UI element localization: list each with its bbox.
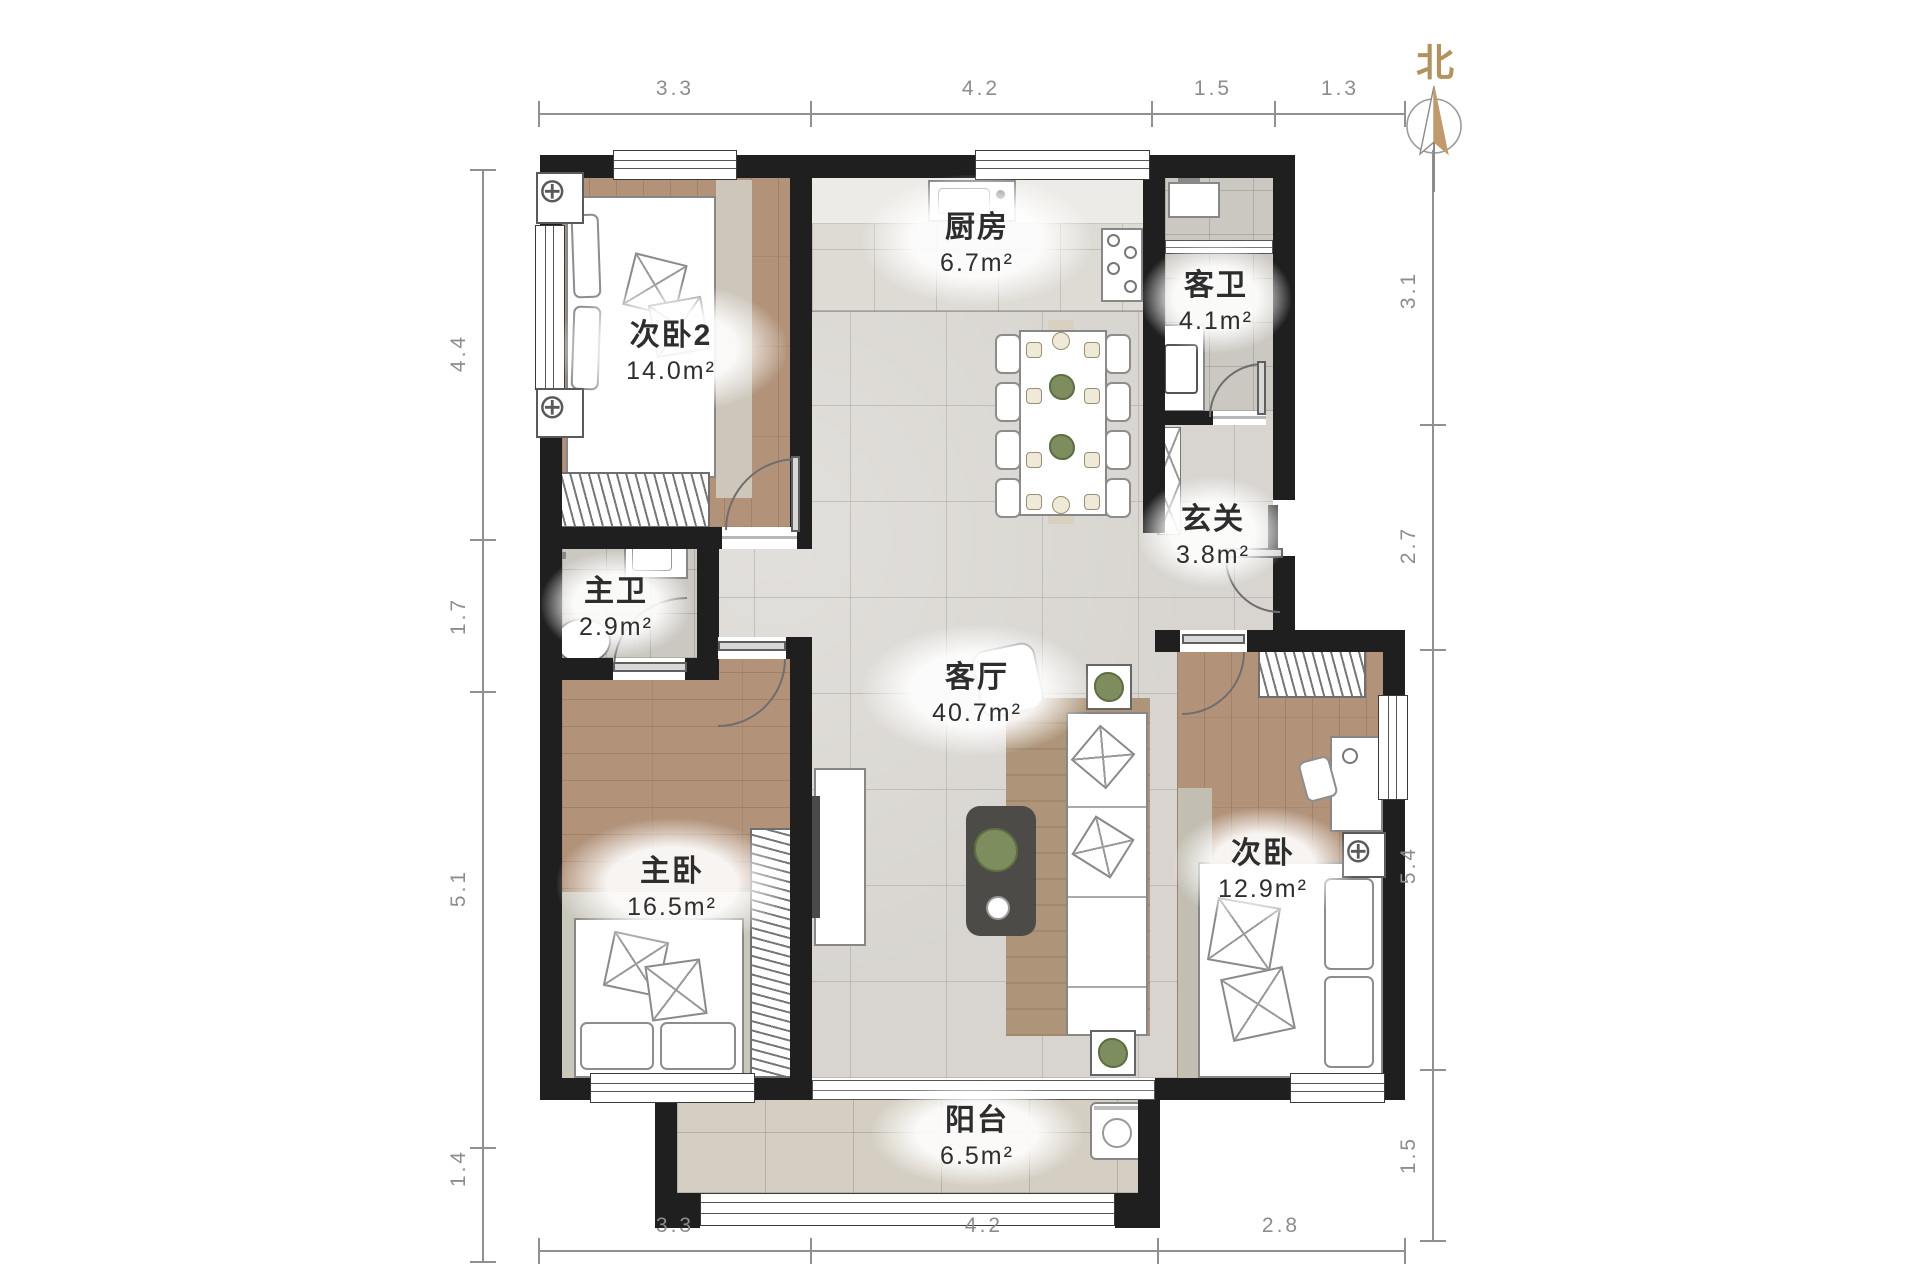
wall (697, 637, 718, 659)
dimension-tick (810, 101, 812, 127)
plant-icon (1094, 672, 1124, 702)
sofa-cushion-line (1068, 896, 1146, 898)
dimension-label: 3.3 (656, 77, 694, 101)
dimension-label: 1.5 (1194, 77, 1232, 101)
room-label-entry-hall: 玄关 3.8m² (1176, 494, 1250, 570)
door-leaf (791, 456, 800, 532)
dining-chair (1105, 382, 1131, 422)
room-label-kitchen: 厨房 6.7m² (940, 202, 1014, 278)
dining-chair (995, 334, 1021, 374)
room-area: 16.5m² (627, 893, 717, 922)
wall (540, 527, 722, 549)
dining-chair (995, 478, 1021, 518)
folded-quilt (1220, 966, 1296, 1042)
dimension-tick (470, 691, 496, 693)
place-setting (1052, 496, 1070, 514)
burner-icon (1107, 234, 1120, 247)
dimension-tick (1420, 1069, 1446, 1071)
place-setting (1026, 388, 1042, 404)
dimension-tick (1404, 1238, 1406, 1264)
folded-quilt (644, 958, 707, 1021)
room-name: 客卫 (1179, 260, 1253, 304)
wall (1383, 630, 1405, 695)
guest-bath-fixture (1168, 182, 1220, 218)
dimension-label: 4.2 (962, 77, 1000, 101)
sofa-cushion-line (1068, 986, 1146, 988)
plant-icon (1098, 1038, 1128, 1068)
burner-icon (1124, 280, 1137, 293)
dimension-line-bottom (539, 1250, 1405, 1252)
dimension-tick (538, 101, 540, 127)
washer-panel (1094, 1106, 1140, 1110)
dimension-tick (470, 169, 496, 171)
dimension-line-left (482, 170, 484, 1262)
washer-door-icon (1102, 1118, 1132, 1148)
wall (540, 658, 613, 680)
tv-stand (814, 768, 866, 946)
place-setting (1084, 452, 1100, 468)
dimension-tick (1151, 101, 1153, 127)
wall (655, 1100, 677, 1195)
desk-lamp-icon (1342, 748, 1358, 764)
room-name: 玄关 (1176, 494, 1250, 538)
kitchen-floor-edge (812, 310, 1143, 312)
dimension-label: 5.1 (447, 869, 471, 907)
room-name: 次卧 (1218, 828, 1308, 872)
dimension-tick (470, 1261, 496, 1263)
window-jamb-icon: ⊕ (536, 172, 584, 224)
room-area: 4.1m² (1179, 307, 1253, 336)
dimension-label: 3.1 (1397, 271, 1421, 309)
place-setting (1084, 494, 1100, 510)
floor-plan-canvas: ⊕ ⊕ ⊕ 厨房 6.7m² 客卫 4.1m² 次卧2 14.0m² 玄关 (0, 0, 1913, 1279)
dimension-tick (1420, 1240, 1446, 1242)
dimension-label: 1.4 (447, 1149, 471, 1187)
dimension-label: 1.5 (1397, 1136, 1421, 1174)
balcony-window-band (700, 1193, 1115, 1226)
door-leaf (613, 662, 687, 672)
dining-chair (1105, 430, 1131, 470)
dimension-tick (538, 1238, 540, 1264)
room-label-guest-bathroom: 客卫 4.1m² (1179, 260, 1253, 336)
room-area: 6.7m² (940, 249, 1014, 278)
window (1378, 695, 1408, 800)
room-label-master-bedroom: 主卧 16.5m² (627, 846, 717, 922)
wall (1155, 630, 1180, 652)
plant-icon (974, 828, 1018, 872)
wall (1247, 630, 1405, 652)
sofa-cushion-line (1068, 806, 1146, 808)
dimension-label: 4.2 (965, 1214, 1003, 1238)
tray-icon (986, 896, 1010, 920)
room-area: 40.7m² (932, 699, 1022, 728)
place-setting (1026, 494, 1042, 510)
window (590, 1073, 755, 1103)
dimension-label: 1.3 (1321, 77, 1359, 101)
bedroom2-wardrobe (546, 472, 710, 528)
dimension-label: 4.4 (447, 334, 471, 372)
dimension-tick (470, 539, 496, 541)
dining-chair (995, 382, 1021, 422)
dimension-tick (470, 1147, 496, 1149)
north-label: 北 (1416, 32, 1454, 87)
compass-icon (1393, 80, 1475, 192)
room-area: 12.9m² (1218, 875, 1308, 904)
wall (790, 659, 812, 1078)
window (1290, 1073, 1385, 1103)
tv-icon (812, 796, 820, 918)
plant-icon (1049, 434, 1075, 460)
wall (1138, 1100, 1160, 1195)
room-area: 6.5m² (940, 1142, 1014, 1171)
place-setting (1084, 388, 1100, 404)
dimension-label: 5.4 (1397, 846, 1421, 884)
pillow (580, 1022, 654, 1070)
room-area: 3.8m² (1176, 541, 1250, 570)
pillow (660, 1022, 736, 1070)
dimension-label: 1.7 (447, 597, 471, 635)
wall (1115, 1193, 1160, 1228)
wall (1157, 411, 1213, 425)
dimension-line-right (1432, 150, 1434, 1242)
room-name: 厨房 (940, 202, 1014, 246)
dimension-tick (1420, 649, 1446, 651)
room-area: 2.9m² (579, 613, 653, 642)
room-name: 客厅 (932, 652, 1022, 696)
place-setting (1026, 452, 1042, 468)
door-leaf (1257, 361, 1266, 415)
room-label-living-room: 客厅 40.7m² (932, 652, 1022, 728)
place-setting (1026, 342, 1042, 358)
burner-icon (1107, 262, 1120, 275)
place-setting (1084, 342, 1100, 358)
window (613, 150, 737, 180)
plant-icon (1049, 374, 1075, 400)
wall (786, 637, 812, 659)
room-label-master-bathroom: 主卫 2.9m² (579, 566, 653, 642)
door-leaf (1182, 634, 1245, 644)
dimension-tick (1420, 424, 1446, 426)
dining-chair (995, 430, 1021, 470)
room-name: 主卫 (579, 566, 653, 610)
room-label-bedroom: 次卧 12.9m² (1218, 828, 1308, 904)
dining-chair (1105, 334, 1131, 374)
dimension-label: 3.3 (656, 1214, 694, 1238)
room-name: 阳台 (940, 1095, 1014, 1139)
wall (685, 658, 719, 680)
dining-chair (1105, 478, 1131, 518)
dimension-label: 2.8 (1262, 1214, 1300, 1238)
room-label-bedroom-2: 次卧2 14.0m² (626, 310, 716, 386)
burner-icon (1124, 246, 1137, 259)
bedroom-closet (1258, 650, 1366, 698)
place-setting (1052, 332, 1070, 350)
door-threshold (722, 536, 797, 539)
dimension-tick (1157, 1238, 1159, 1264)
dimension-tick (1274, 101, 1276, 127)
door-leaf (718, 641, 786, 651)
room-name: 主卧 (627, 846, 717, 890)
dimension-label: 2.7 (1397, 526, 1421, 564)
dimension-tick (810, 1238, 812, 1264)
pillow (1324, 976, 1374, 1068)
room-name: 次卧2 (626, 310, 716, 354)
room-label-balcony: 阳台 6.5m² (940, 1095, 1014, 1171)
room-area: 14.0m² (626, 357, 716, 386)
